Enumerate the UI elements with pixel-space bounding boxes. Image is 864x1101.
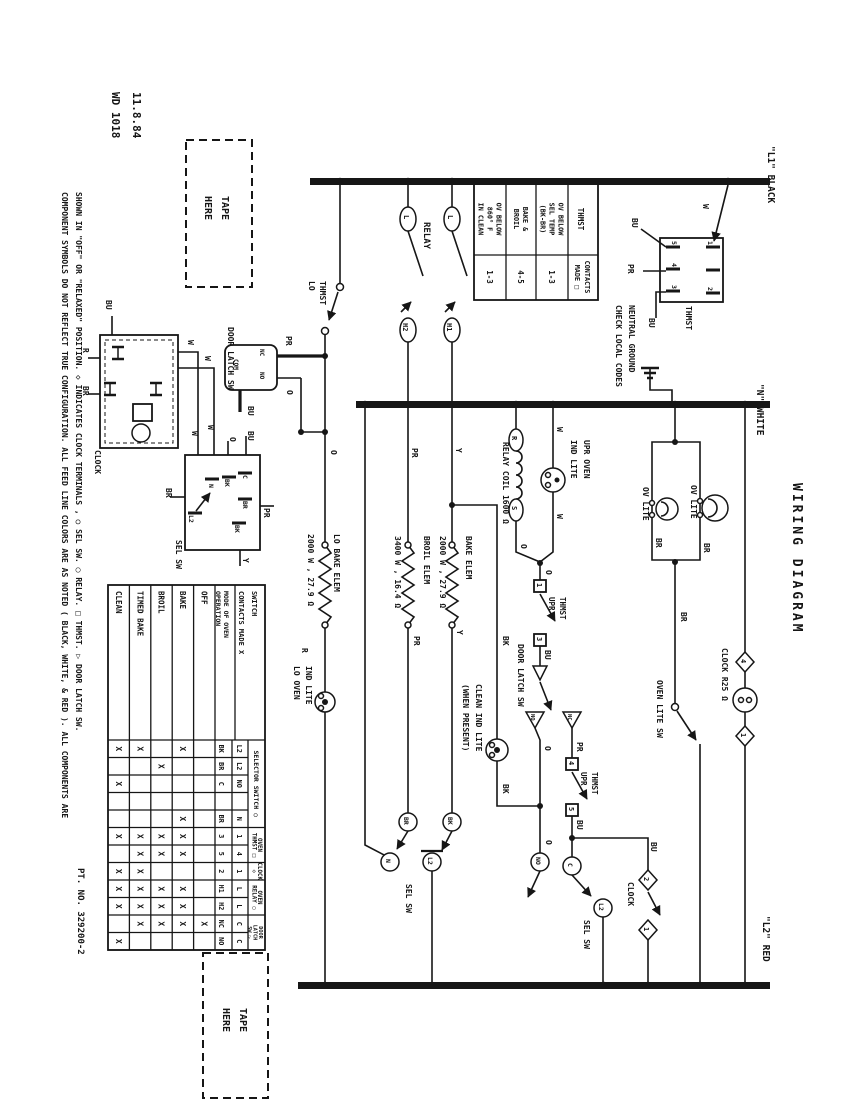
contact-terminal-1: L2 [235,745,243,753]
contact-terminal-2: NO [217,937,225,945]
x-mark: X [178,886,187,891]
ov-lite-lamp-1 [656,498,678,520]
wire-label-bk: BK [501,636,510,646]
relay-terminal-l: L [446,215,454,219]
x-mark: X [178,851,187,856]
wire-label-br: BR [679,612,688,622]
note-line-2: SHOWN IN "OFF" OR "RELAXED" POSITION. ◇ … [74,192,83,731]
part-number-label: PT. NO. 329200-2 [75,868,85,955]
wire-label-pr: PR [284,336,293,346]
contact-terminal-1: C [235,939,243,943]
sel-sw-blade-bk [442,831,452,850]
ind-lite-label: IND LITE [569,440,578,479]
lo-bake-elem-spec: 2000 W , 27.9 Ω [306,534,315,606]
thmst-terminal-3: 3 [535,637,543,641]
terminal-no: NO [529,714,535,721]
tape-here-bottom-2: HERE [220,1008,231,1032]
clock-label: CLOCK [626,882,635,906]
terminal-c: C [566,863,574,867]
terminal-bk: BK [233,525,241,533]
thmst-upr-label-1: THMST [558,597,567,620]
x-mark: X [114,904,123,909]
door-latch-sw-label: DOOR LATCH SW [516,644,525,707]
relay-terminal-l: L [402,215,410,219]
oven-lite-sw-label: OVEN LITE SW [655,680,664,738]
mode-label: BROIL [157,591,166,614]
x-mark: X [178,816,187,821]
terminal-c: C [241,475,249,479]
thmst-row-value: 1-3 [485,270,494,284]
x-mark: X [178,921,187,926]
contact-terminal-2: 3 [217,834,225,838]
thmst-table-header: MADE □ [573,265,581,290]
switch-group-label: SELECTOR SWITCH ○ [252,750,260,817]
lo-thmst-label-1: LO [307,281,316,291]
thmst-row-label: BAKE & [521,207,529,232]
wire-label-br: BR [164,488,173,498]
thmst-row-label: 860° F [485,207,493,232]
thmst-contacts-table: THMSTCONTACTSMADE □OV BELOWSEL TEMP(BK-B… [474,183,598,300]
contact-terminal-1: NO [235,780,243,788]
page-title: WIRING DIAGRAM [789,483,804,635]
contact-terminal-2: NC [217,920,225,928]
terminal-shapes [322,284,755,941]
lo-oven-label: LO OVEN [292,666,301,700]
bus-n-label: "N" WHITE [754,384,765,436]
contact-terminal-1: C [235,922,243,926]
x-mark: X [114,781,123,786]
oven-lite-sw-blade [677,711,696,740]
clock-r25-label: CLOCK R25 Ω [720,648,729,701]
wiring-diagram-canvas: THMSTCONTACTSMADE □OV BELOWSEL TEMP(BK-B… [0,0,864,1101]
x-mark: X [157,904,166,909]
scanned-wiring-diagram-page: THMSTCONTACTSMADE □OV BELOWSEL TEMP(BK-B… [0,0,864,1101]
upr-oven-label: UPR OVEN [582,440,591,479]
wire-label-pr: PR [410,448,419,458]
contact-terminal-2: BK [217,745,225,754]
thmst-table-header: CONTACTS [583,261,591,294]
terminal-bk: BK [223,479,231,487]
contact-terminal-2: 5 [217,852,225,856]
contact-terminal-1: 1 [235,869,243,873]
wire-label-pr: PR [262,508,271,518]
wire-label-br: BR [81,386,90,396]
clock-terminal-1: 1 [739,733,747,737]
mode-table-title: CONTACTS MADE X [237,591,245,655]
wire-label-y: Y [454,448,463,453]
bus-n [356,401,770,408]
terminal-l2: L2 [597,903,605,911]
wire-label-o: O [285,390,294,395]
contact-terminal-1: L [235,904,243,908]
x-mark: X [157,764,166,769]
wire-label-w: W [206,425,215,430]
thmst-row-label: IN CLEAN [476,203,484,236]
x-mark: X [157,834,166,839]
thmst-box [660,238,723,302]
wire-label-o: O [329,450,338,455]
thmst-row-label: BROIL [512,209,520,229]
terminal-no: NO [258,372,265,380]
wire-label-o: O [544,840,553,845]
lo-bake-element [319,545,331,625]
wire-label-r: R [81,348,90,353]
thmst-upr-label-1: THMST [590,772,599,795]
lo-thmst-blade [329,292,338,320]
wire-label-r: R [300,648,309,653]
x-mark: X [135,746,144,751]
wire-label-o: O [228,437,237,442]
wire-label-bk: BK [501,784,510,794]
x-mark: X [135,851,144,856]
wire-label-o: O [519,544,528,549]
switch-group-label: SW ▷ [246,926,252,939]
contact-terminal-1: L [235,887,243,891]
tape-here-top-2: HERE [202,196,213,220]
sel-sw-blade-br [397,831,408,849]
wire-label-w: W [186,340,195,345]
wire-label-br: BR [654,538,663,548]
terminal-l2: L2 [187,515,195,523]
x-mark: X [135,886,144,891]
switch-group-label: THMST □ [250,833,256,858]
thmst-box-label: THMST [684,306,693,330]
x-mark: X [178,834,187,839]
mode-of-operation-table: SWITCHCONTACTS MADE XMODE OF OVENOPERATI… [108,585,265,950]
ind-lite-label: IND LITE [304,666,313,705]
terminal-bk: BK [446,817,454,825]
mode-table-title: SWITCH [250,591,258,616]
date-label: 11.8.84 [130,92,143,139]
terminal-l2: L2 [426,857,434,865]
x-mark: X [157,886,166,891]
thmst-terminal-1: 1 [535,583,543,587]
lo-thmst-label-2: THMST [318,281,327,305]
ov-lite-lamp-2 [702,495,728,521]
wire-label-o: O [544,570,553,575]
wire-label-pr: PR [412,636,421,646]
clean-ind-lite-label: CLEAN IND LITE [474,684,483,752]
thmst-blade [714,185,728,241]
wire-label-w: W [555,514,564,519]
ov-lite-label: OV LITE [689,485,698,519]
wire-label-bu: BU [649,842,658,852]
relay-coil-label: RELAY COIL 1600 Ω [501,442,510,524]
wire-label-bu: BU [246,431,255,441]
x-mark: X [114,939,123,944]
wire-label-w: W [555,427,564,432]
bake-elem-label: BAKE ELEM [464,536,473,580]
terminal-no: NO [534,857,542,865]
contact-terminal-1: N [235,817,243,821]
x-mark: X [178,904,187,909]
contact-terminal-2: BR [217,815,225,824]
terminal-n: N [384,859,392,863]
wire-label-bu: BU [104,300,113,310]
relay-label: RELAY [421,222,431,250]
mode-label: TIMED BAKE [135,591,144,637]
doc-number-label: WD 1018 [109,92,122,138]
x-mark: X [135,921,144,926]
bake-elem-spec: 2000 W , 27.9 Ω [438,536,447,608]
tape-here-box-bottom [203,953,268,1098]
thmst-row-label: (BK-BR) [538,205,546,234]
x-mark: X [135,869,144,874]
wire-label-bu: BU [647,318,656,328]
wire-label-w: W [190,431,199,436]
sel-sw-label: SEL SW [582,920,591,949]
contact-terminal-2: C [217,782,225,786]
mode-table-row-header: MODE OF OVEN [222,591,230,638]
x-mark: X [114,746,123,751]
neutral-ground-label-2: CHECK LOCAL CODES [614,305,623,387]
relay-blade-2 [452,231,467,276]
broil-elem-spec: 3400 W , 16.4 Ω [393,536,402,608]
thmst-row-value: 1-3 [547,270,556,284]
no-blade [528,871,540,897]
wire-label-y: Y [241,558,250,563]
x-mark: X [114,886,123,891]
thmst-row-label: SEL TEMP [547,203,555,236]
clock-terminal-2: 2 [642,877,650,881]
upr-oven-ind-lite-lamp [541,468,565,492]
x-mark: X [114,834,123,839]
thmst-row-label: OV BELOW [556,203,564,237]
note-line-1: COMPONENT SYMBOLS DO NOT REFLECT TRUE CO… [60,192,69,818]
bus-l2-label: "L2" RED [760,916,771,962]
broil-elem-label: BROIL ELEM [422,536,431,584]
thmst-terminal-2: 2 [706,287,714,291]
relay-terminal-h1: H1 [445,323,453,331]
bus-l1-label: "L1" BLACK [765,146,776,203]
tape-here-bottom-1: TAPE [237,1008,248,1032]
door-latch-blade [540,682,551,710]
switch-group-label: RELAY ◯ [250,885,256,910]
terminal-n: N [207,484,215,488]
clock-terminal-1: 1 [642,927,650,931]
x-mark: X [200,921,209,926]
wire-label-pr: PR [575,742,584,752]
wire-label-w: W [701,204,710,209]
thmst-terminal-4: 4 [670,263,678,267]
mode-label: BAKE [178,591,187,610]
wire-label-br: BR [702,543,711,553]
x-mark: X [135,904,144,909]
sel-sw-blade-c [572,875,591,896]
clock-r25-coil [733,688,757,712]
wire-label-pr: PR [626,264,635,274]
broil-element [402,545,414,625]
clock-blade [648,892,660,915]
thmst-row-label: OV BELOW [494,203,502,237]
coil-terminal-s: S [510,506,518,510]
wire-label-bu: BU [575,820,584,830]
sel-sw-label: SEL SW [174,540,183,569]
thmst-terminal-5: 5 [567,807,575,811]
lo-bake-elem-label: LO BAKE ELEM [332,534,341,592]
wire-label-y: Y [455,630,464,635]
wire-label-o: O [543,746,552,751]
thmst-terminal-4: 4 [567,761,575,765]
terminal-nc: NC [566,714,572,721]
mode-table-row-header: OPERATION [214,591,222,626]
x-mark: X [178,746,187,751]
thmst-terminal-3: 3 [670,285,678,289]
terminal-br: BR [402,817,410,825]
terminal-nc: NC [258,349,265,357]
relay-terminal-h2: H2 [401,323,409,331]
contact-terminal-2: H1 [217,885,225,893]
thmst-terminal-5: 5 [670,241,678,245]
wire-label-bu: BU [246,406,255,416]
tape-here-top-1: TAPE [219,196,230,220]
contact-terminal-2: 2 [217,869,225,873]
sel-sw-box-blade [196,493,210,511]
thmst-row-value: 4-5 [516,270,525,284]
x-mark: X [157,851,166,856]
switch-blades [196,185,728,915]
contact-terminal-1: 1 [235,834,243,838]
mode-label: CLEAN [114,591,123,614]
thmst-terminal-1: 1 [706,241,714,245]
thmst-upr-label-2: UPR [547,597,556,611]
bus-l1 [310,178,770,185]
mode-label: OFF [200,591,209,605]
terminal-com: COM [232,359,239,370]
when-present-label: (WHEN PRESENT) [461,684,470,751]
x-mark: X [114,869,123,874]
tape-here-box-top [186,140,252,287]
x-mark: X [157,921,166,926]
clock-terminal-4: 4 [739,659,747,663]
wire-label-w: W [203,356,212,361]
relay-blade-1 [408,231,423,276]
ov-lite-label: OV LITE [641,487,650,521]
contact-terminal-2: H2 [217,902,225,910]
x-mark: X [135,834,144,839]
switch-group-label: ◇ [250,870,256,874]
thmst-upr-label-2: UPR [579,772,588,786]
contact-terminal-1: 4 [235,852,243,856]
terminal-br: BR [241,501,249,509]
thmst-table-header: THMST [576,208,585,231]
clock-box [100,335,178,448]
clock-box-label: CLOCK [93,450,102,474]
wire-label-bu: BU [630,218,639,228]
contact-terminal-2: BR [217,762,225,771]
sel-sw-label: SEL SW [404,884,413,913]
neutral-ground-label-1: NEUTRAL GROUND [627,305,636,373]
contact-terminal-1: L2 [235,762,243,770]
wire-label-bu: BU [543,650,552,660]
